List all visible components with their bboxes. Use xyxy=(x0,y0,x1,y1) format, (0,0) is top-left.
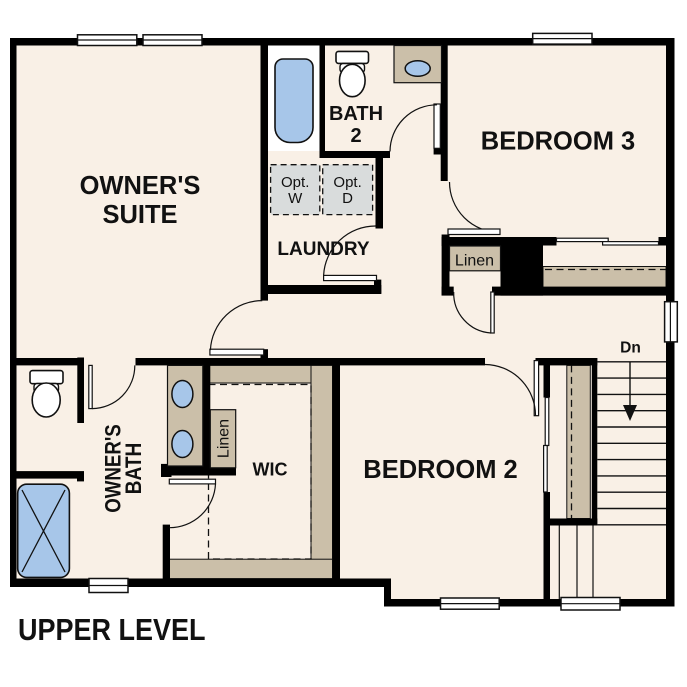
svg-text:WIC: WIC xyxy=(253,460,288,480)
svg-text:Dn: Dn xyxy=(620,340,641,357)
svg-text:UPPER LEVEL: UPPER LEVEL xyxy=(18,613,206,647)
svg-text:BATH: BATH xyxy=(121,443,146,495)
svg-text:BEDROOM 2: BEDROOM 2 xyxy=(363,456,517,484)
svg-text:Opt.: Opt. xyxy=(333,174,361,191)
svg-text:SUITE: SUITE xyxy=(102,201,177,229)
svg-text:OWNER'S: OWNER'S xyxy=(80,172,201,200)
svg-text:2: 2 xyxy=(350,125,361,147)
svg-text:BATH: BATH xyxy=(329,103,383,125)
svg-text:W: W xyxy=(288,190,303,207)
svg-text:Linen: Linen xyxy=(216,419,233,458)
svg-text:D: D xyxy=(342,190,353,207)
svg-text:LAUNDRY: LAUNDRY xyxy=(277,239,370,260)
svg-text:Linen: Linen xyxy=(455,253,494,270)
svg-text:BEDROOM 3: BEDROOM 3 xyxy=(481,128,635,156)
svg-text:Opt.: Opt. xyxy=(281,174,309,191)
